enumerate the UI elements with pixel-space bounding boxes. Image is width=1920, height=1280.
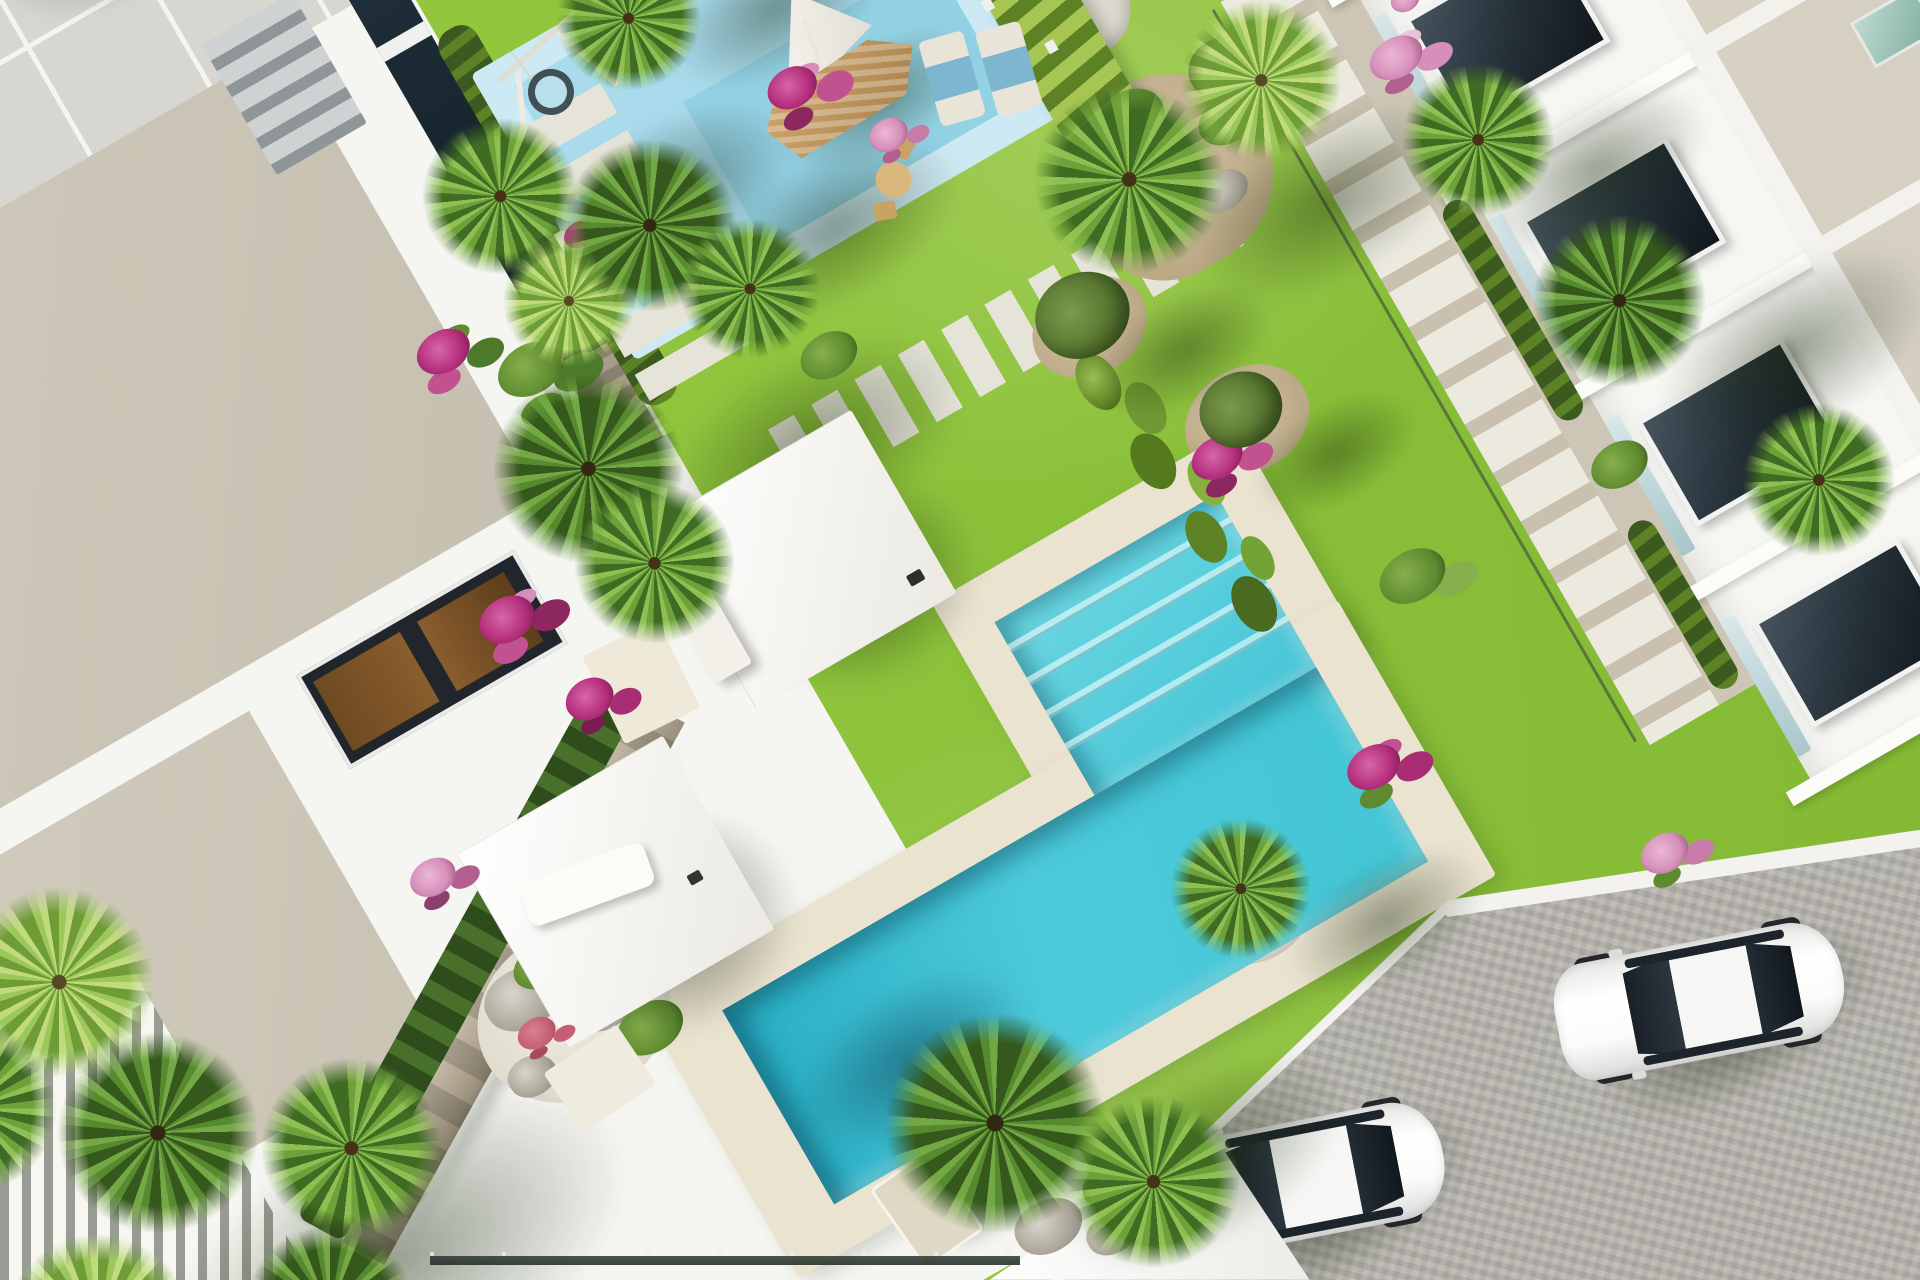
kids-chair xyxy=(873,200,898,222)
aerial-render xyxy=(0,0,1920,1280)
nest-swing-ring xyxy=(520,61,583,124)
glass-balustrade-fence xyxy=(430,1256,1020,1265)
scene-world xyxy=(0,0,1920,1280)
